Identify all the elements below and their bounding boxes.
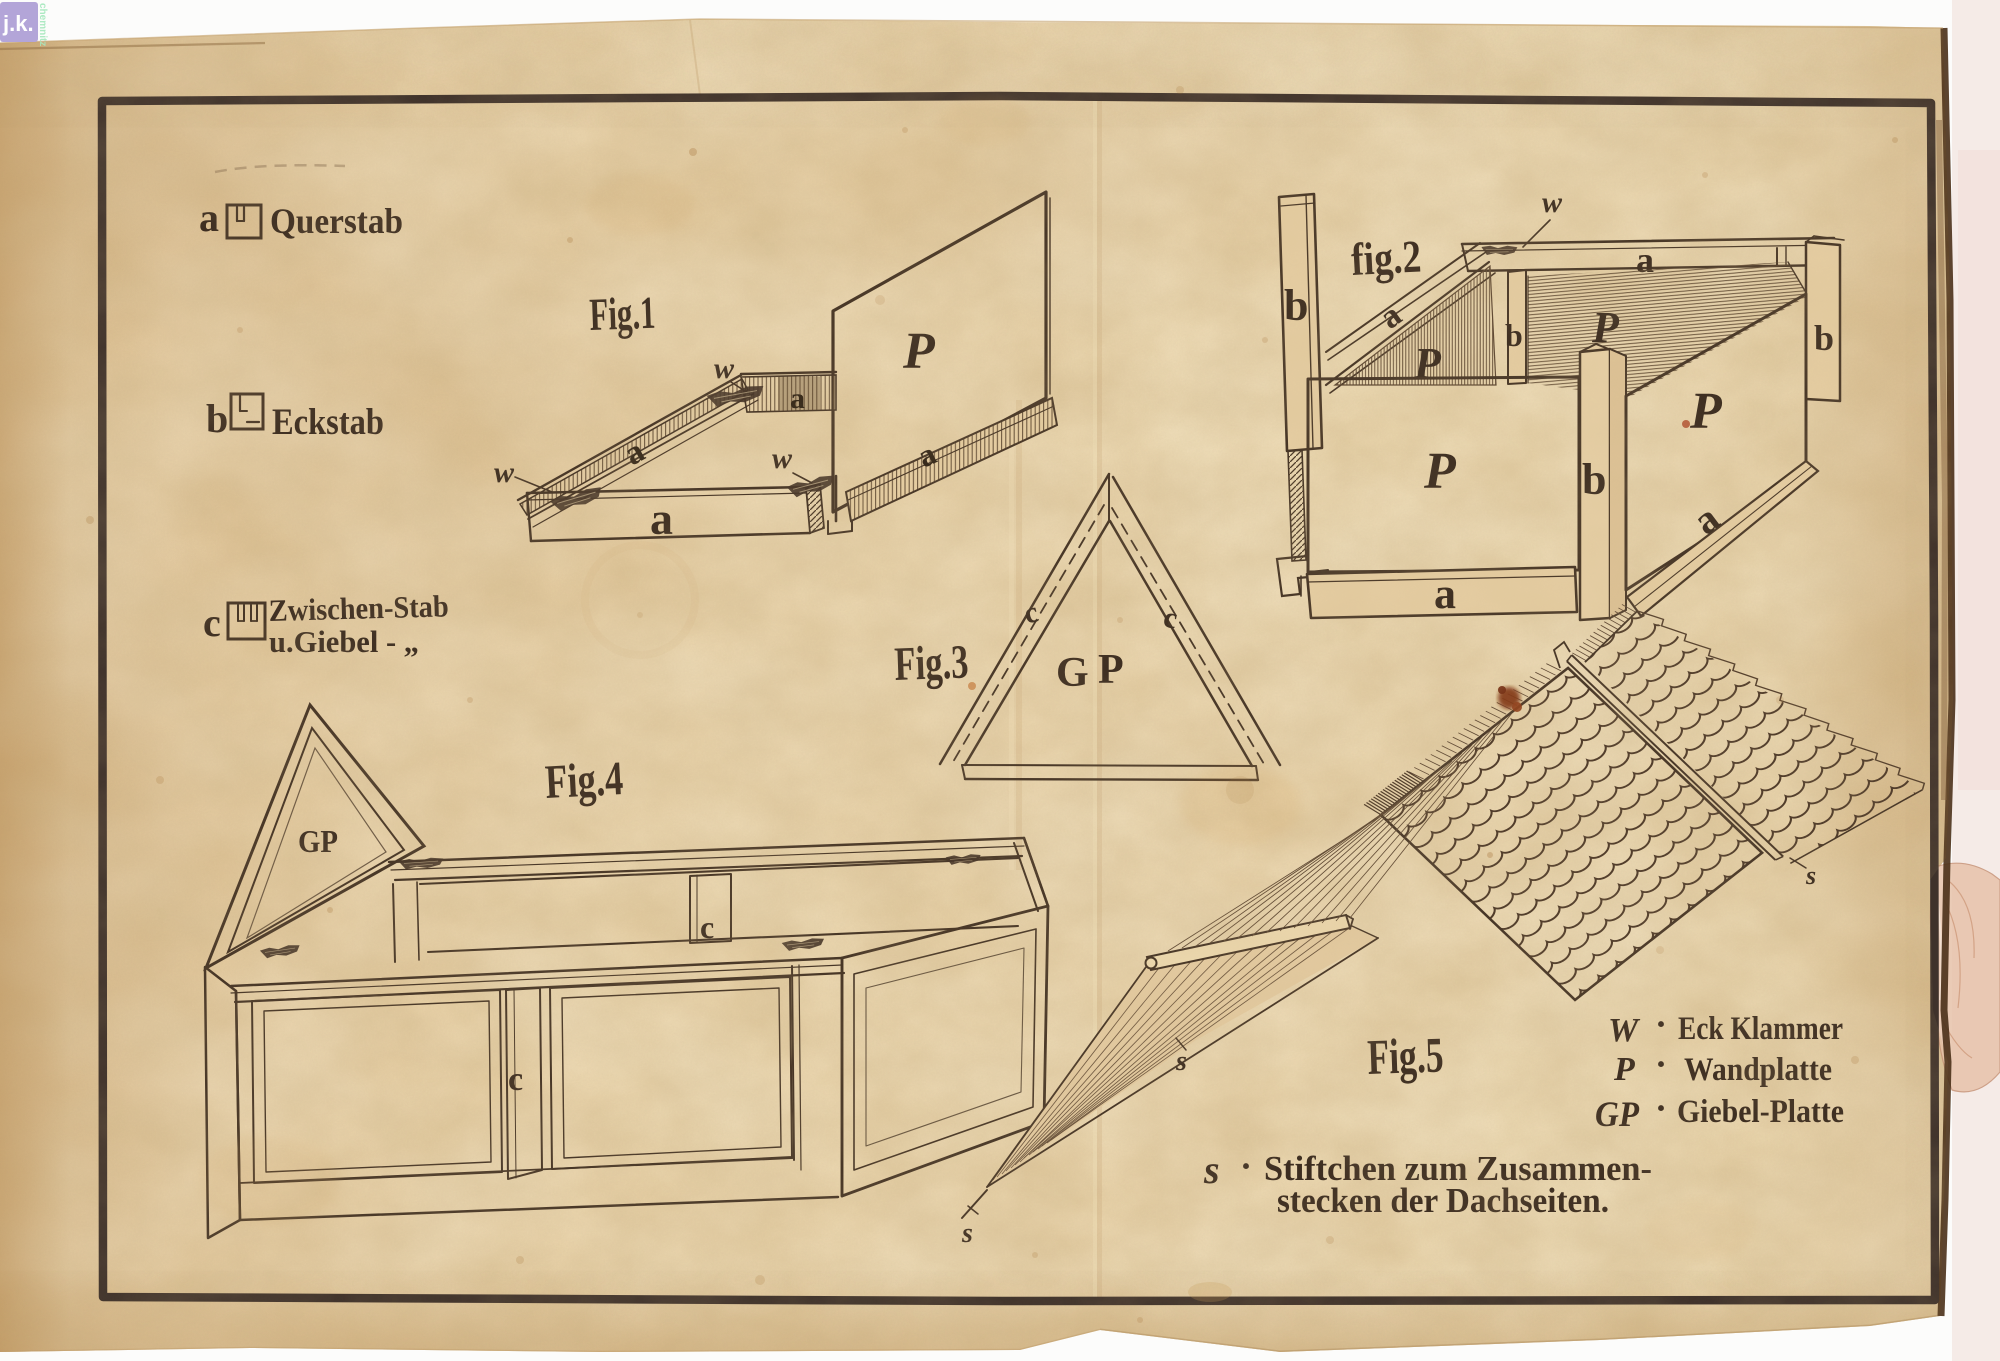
svg-text:j.k.: j.k. [2, 11, 34, 36]
svg-text:Wandplatte: Wandplatte [1684, 1052, 1832, 1088]
svg-text:P: P [1413, 339, 1442, 388]
svg-text:P: P [902, 323, 936, 380]
svg-text:w: w [772, 442, 793, 475]
svg-text:c: c [203, 600, 221, 645]
svg-text:Fig.5: Fig.5 [1366, 1026, 1444, 1085]
svg-text:fig.2: fig.2 [1350, 230, 1423, 285]
svg-text:Eck Klammer: Eck Klammer [1678, 1011, 1843, 1047]
svg-text:b: b [206, 396, 228, 441]
svg-text:w: w [494, 456, 515, 489]
svg-text:s: s [1175, 1046, 1187, 1077]
svg-text:s: s [961, 1218, 973, 1249]
svg-text:c: c [700, 909, 714, 945]
svg-text:a: a [790, 382, 805, 415]
svg-text:Fig.4: Fig.4 [544, 752, 625, 809]
svg-text:s: s [1805, 861, 1816, 890]
svg-text:stecken der Dachseiten.: stecken der Dachseiten. [1277, 1181, 1609, 1220]
svg-text:·: · [1655, 1044, 1667, 1084]
svg-text:w: w [1542, 186, 1563, 219]
svg-text:Fig.1: Fig.1 [589, 287, 657, 340]
svg-text:c: c [508, 1061, 523, 1098]
svg-text:chemnitz: chemnitz [37, 3, 48, 46]
svg-text:Eckstab: Eckstab [272, 402, 384, 443]
svg-text:Fig.3: Fig.3 [894, 635, 970, 691]
svg-text:·: · [1655, 1088, 1667, 1128]
svg-text:GP: GP [1595, 1094, 1640, 1134]
svg-text:W: W [1608, 1012, 1641, 1049]
svg-text:P: P [1423, 443, 1457, 500]
svg-text:P: P [1613, 1051, 1635, 1088]
svg-text:b: b [1505, 317, 1523, 353]
svg-text:·: · [1655, 1004, 1667, 1044]
svg-text:Zwischen-Stab: Zwischen-Stab [268, 588, 449, 628]
svg-text:P: P [1098, 647, 1124, 693]
svg-text:a: a [650, 493, 673, 544]
svg-text:b: b [1582, 455, 1606, 504]
svg-text:·: · [1240, 1146, 1252, 1186]
svg-text:G: G [1056, 650, 1089, 696]
svg-text:Giebel-Platte: Giebel-Platte [1677, 1094, 1844, 1130]
svg-text:u.Giebel - „: u.Giebel - „ [269, 624, 419, 659]
svg-text:P: P [1689, 383, 1723, 440]
svg-text:GP: GP [298, 823, 338, 859]
svg-text:b: b [1814, 318, 1834, 358]
svg-text:s: s [1203, 1147, 1220, 1192]
svg-text:w: w [714, 352, 735, 385]
svg-text:a: a [1434, 569, 1456, 618]
svg-text:b: b [1284, 281, 1308, 330]
svg-text:Querstab: Querstab [270, 201, 403, 241]
svg-text:a: a [199, 195, 219, 240]
